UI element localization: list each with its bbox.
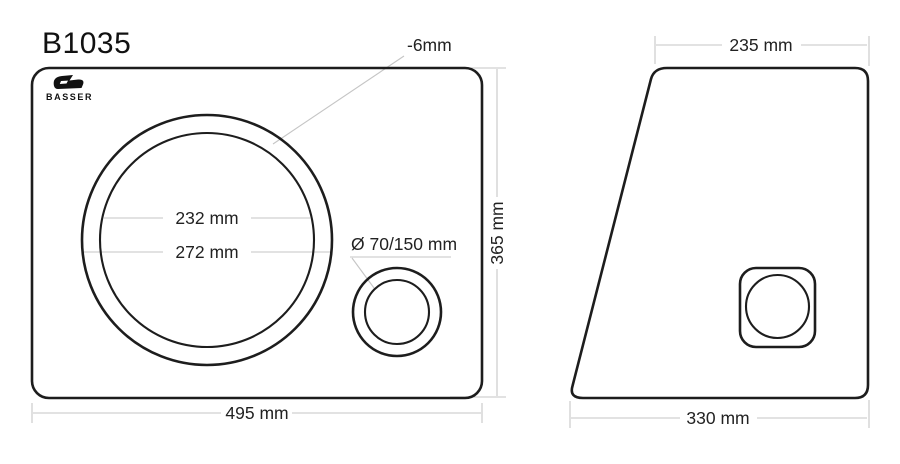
side-cutout-circle xyxy=(746,275,809,338)
front-view: BASSER 232 mm 272 mm -6mm Ø 70/150 mm 49… xyxy=(32,35,507,423)
speaker-cutout-inner-circle xyxy=(100,133,314,347)
brand-logo-text: BASSER xyxy=(46,92,93,102)
side-top-width-label: 235 mm xyxy=(729,35,792,55)
side-cutout-square xyxy=(740,268,815,347)
speaker-inner-diameter-label: 232 mm xyxy=(175,208,238,228)
page-title: B1035 xyxy=(42,27,131,60)
side-view: 235 mm 330 mm xyxy=(570,35,869,428)
brand-logo: BASSER xyxy=(46,75,93,102)
port-outer-circle xyxy=(353,268,441,356)
side-panel-outline xyxy=(572,68,868,398)
speaker-cutout-outer-circle xyxy=(82,115,332,365)
port-diameter-label: Ø 70/150 mm xyxy=(351,234,457,254)
side-view-dimension-lines xyxy=(570,36,869,428)
speaker-outer-diameter-label: 272 mm xyxy=(175,242,238,262)
port-inner-circle xyxy=(365,280,429,344)
recess-depth-label: -6mm xyxy=(407,35,452,55)
drawing-canvas: B1035 xyxy=(0,0,900,464)
technical-drawing-page: B1035 xyxy=(0,0,900,464)
brand-logo-icon xyxy=(54,75,84,89)
front-height-label: 365 mm xyxy=(487,201,507,264)
front-width-label: 495 mm xyxy=(225,403,288,423)
side-bottom-width-label: 330 mm xyxy=(686,408,749,428)
